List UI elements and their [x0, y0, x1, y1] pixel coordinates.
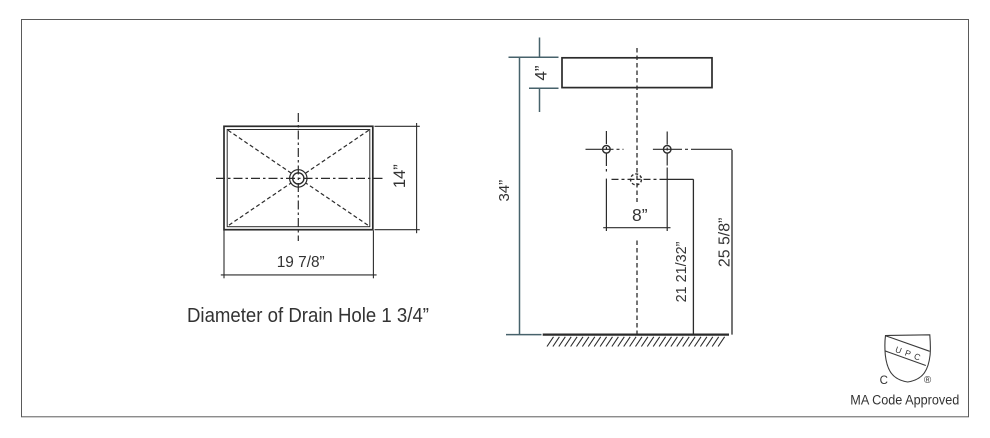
svg-text:Diameter of Drain Hole 1 3/4”: Diameter of Drain Hole 1 3/4” [187, 304, 429, 327]
svg-text:C: C [880, 375, 888, 387]
svg-text:25 5/8”: 25 5/8” [716, 218, 733, 267]
svg-text:4”: 4” [531, 65, 550, 80]
svg-text:®: ® [924, 375, 932, 386]
svg-text:21 21/32”: 21 21/32” [674, 241, 690, 302]
svg-text:MA Code Approved: MA Code Approved [850, 393, 959, 408]
svg-text:19 7/8”: 19 7/8” [277, 254, 325, 271]
svg-text:34”: 34” [496, 180, 513, 202]
svg-text:14”: 14” [390, 164, 409, 188]
svg-text:8”: 8” [632, 205, 648, 225]
